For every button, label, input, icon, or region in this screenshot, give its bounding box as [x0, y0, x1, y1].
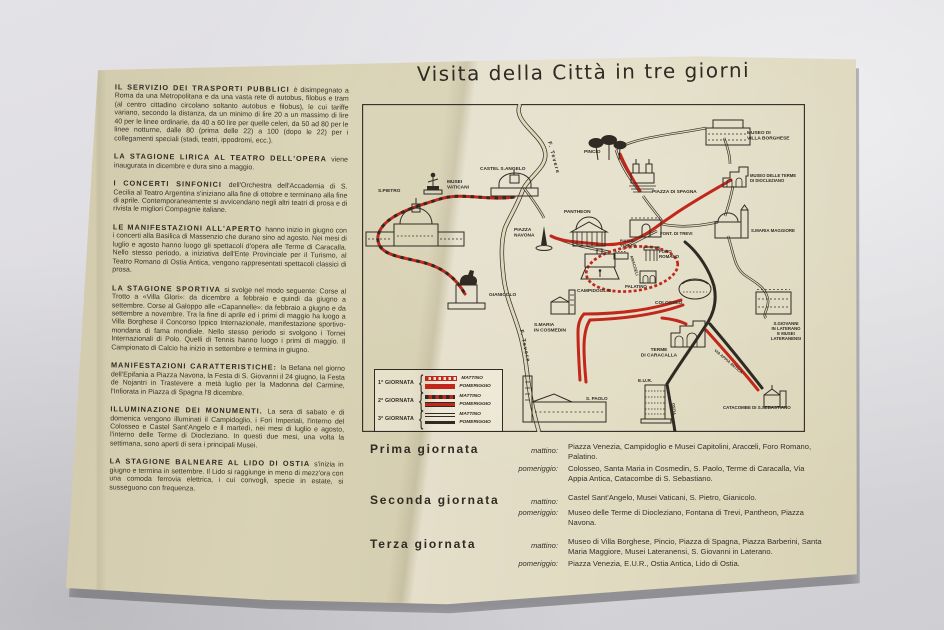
itinerary-day-name: Seconda giornata: [370, 493, 500, 507]
terme-diocleziano-icon: [723, 167, 748, 187]
legend-entry: MATTINO: [425, 412, 490, 417]
map-label: S.PIETRO: [378, 188, 401, 194]
itinerary-time-label: pomeriggio:: [370, 508, 558, 529]
legend-swatch-label: MATTINO: [461, 376, 483, 381]
map-label: F. Tevere: [546, 141, 560, 175]
map-label: CAMPIDOGLIO: [577, 288, 612, 294]
vittoriano-icon: [614, 252, 628, 260]
campidoglio-icon: [581, 249, 619, 279]
map-label: FOROROMANO: [659, 249, 680, 259]
map-label: COLOSSEO: [655, 300, 682, 306]
map-label: CATACOMBE DI S.SEBASTIANO: [723, 405, 791, 410]
santa-maria-maggiore-icon: [715, 205, 748, 238]
map-label: GIANICOLO: [489, 292, 516, 298]
trinita-dei-monti-icon: [629, 159, 656, 192]
itinerary-day: Terza giornatamattino:Museo di Villa Bor…: [370, 537, 822, 569]
map-label: ARACOELI: [629, 255, 640, 276]
map-label: FONT. DI TREVI: [660, 231, 692, 236]
route-legend: 1ª GIORNATA{MATTINOPOMERIGGIO2ª GIORNATA…: [374, 369, 503, 432]
itinerary-afternoon-text: Piazza Venezia, E.U.R., Ostia Antica, Li…: [568, 559, 822, 569]
legend-row: 2ª GIORNATA{MATTINOPOMERIGGIO: [378, 394, 499, 407]
itinerary-day-head: Seconda giornatamattino:: [370, 493, 558, 507]
legend-brace: {: [419, 408, 423, 428]
brochure-paper: IL SERVIZIO DEI TRASPORTI PUBBLICI è dis…: [60, 12, 860, 612]
itinerary-day-head: Terza giornatamattino:: [370, 537, 558, 558]
legend-swatch-d1p: [425, 384, 455, 389]
itinerary-afternoon-text: Colosseo, Santa Maria in Cosmedin, S. Pa…: [568, 464, 822, 485]
legend-entries: MATTINOPOMERIGGIO: [425, 394, 490, 407]
catacombe-church-icon: [764, 385, 786, 407]
legend-day-label: 2ª GIORNATA: [378, 398, 419, 404]
paragraph-heading: MANIFESTAZIONI CARATTERISTICHE:: [111, 361, 281, 372]
map-label: S.MARIA MAGGIORE: [751, 228, 795, 233]
legend-swatch-d2m: [425, 395, 455, 400]
paragraph-heading: LA STAGIONE BALNEARE AL LIDO DI OSTIA: [110, 457, 315, 469]
map-label: E.U.R.: [638, 378, 652, 384]
paragraph-heading: LA STAGIONE SPORTIVA: [112, 283, 224, 294]
paragraph-heading: LA STAGIONE LIRICA AL TEATRO DELL'OPERA: [114, 152, 331, 164]
legend-swatch-d3p: [425, 421, 455, 425]
brochure-paragraph: IL SERVIZIO DEI TRASPORTI PUBBLICI è dis…: [114, 83, 349, 146]
legend-day-label: 3ª GIORNATA: [378, 416, 419, 422]
itinerary-day: Prima giornatamattino:Piazza Venezia, Ca…: [370, 442, 822, 485]
day3-afternoon-route: [667, 242, 762, 432]
eur-palazzo-icon: [641, 385, 671, 423]
map-label: MUSEIVATICANI: [447, 179, 470, 191]
itinerary-time-label: pomeriggio:: [370, 559, 558, 569]
page-title: Visita della Città in tre giorni: [360, 57, 807, 86]
itinerary-day: Seconda giornatamattino:Castel Sant'Ange…: [370, 493, 822, 529]
legend-entry: POMERIGGIO: [425, 420, 490, 425]
map-label: PINCIO: [584, 149, 601, 155]
legend-swatch-d3m: [425, 413, 455, 418]
itinerary-afternoon-text: Museo delle Terme di Diocleziano, Fontan…: [568, 508, 822, 529]
tiber-river: [502, 104, 545, 432]
legend-swatch-label: MATTINO: [459, 412, 481, 417]
legend-entries: MATTINOPOMERIGGIO: [425, 412, 490, 425]
photo-backdrop: IL SERVIZIO DEI TRASPORTI PUBBLICI è dis…: [0, 0, 944, 630]
colosseo-icon: [679, 279, 711, 299]
itinerary-time-label: pomeriggio:: [370, 464, 558, 485]
left-column: IL SERVIZIO DEI TRASPORTI PUBBLICI è dis…: [109, 83, 349, 504]
legend-swatch-label: POMERIGGIO: [459, 420, 490, 425]
brochure-paragraph: ILLUMINAZIONE DEI MONUMENTI. La sera di …: [110, 405, 345, 452]
day2-afternoon-route: [551, 154, 731, 245]
paragraph-heading: I CONCERTI SINFONICI: [113, 178, 228, 189]
map-label: MUSEO DIVILLA BORGHESE: [747, 130, 790, 142]
legend-entry: POMERIGGIO: [425, 384, 490, 389]
paragraph-heading: LE MANIFESTAZIONI ALL'APERTO: [113, 222, 265, 233]
brochure-paragraph: LA STAGIONE LIRICA AL TEATRO DELL'OPERA …: [114, 153, 348, 174]
legend-swatch-label: POMERIGGIO: [459, 402, 490, 407]
map-label: OSTIA: [671, 403, 677, 416]
itinerary-morning-text: Museo di Villa Borghese, Pincio, Piazza …: [568, 537, 822, 558]
legend-swatch-d2p: [425, 402, 455, 407]
map-label: PIAZZANAVONA: [514, 227, 535, 239]
map-label: F. Tevere: [518, 329, 531, 363]
day2-morning-route: [378, 196, 514, 294]
itinerary-day-head: Prima giornatamattino:: [370, 442, 558, 463]
itinerary-time-label: mattino:: [531, 541, 558, 550]
brochure-paragraph: LE MANIFESTAZIONI ALL'APERTO hanno inizi…: [112, 223, 347, 278]
villa-borghese-icon: [706, 120, 750, 145]
brochure-paragraph: I CONCERTI SINFONICI dell'Orchestra dell…: [113, 179, 347, 217]
legend-row: 3ª GIORNATA{MATTINOPOMERIGGIO: [378, 412, 499, 425]
vatican-statue-icon: [424, 173, 442, 194]
map-label: PIAZZA DI SPAGNA: [652, 189, 697, 195]
paragraph-heading: ILLUMINAZIONE DEI MONUMENTI.: [110, 404, 267, 415]
legend-entry: MATTINO: [425, 376, 490, 381]
map-label: TERMEDI CARACALLA: [641, 347, 678, 359]
map-label: S.MARIAIN COSMEDIN: [534, 322, 567, 334]
brochure-paragraph: LA STAGIONE BALNEARE AL LIDO DI OSTIA s'…: [109, 458, 343, 496]
castel-santangelo-icon: [491, 170, 538, 196]
legend-entry: MATTINO: [425, 394, 490, 399]
san-giovanni-laterano-icon: [756, 290, 791, 315]
map-label: MUSEO DELLE TERMEDI DIOCLEZIANO: [750, 173, 796, 183]
itinerary-morning-text: Piazza Venezia, Campidoglio e Musei Capi…: [568, 442, 822, 463]
itinerary-morning-text: Castel Sant'Angelo, Musei Vaticani, S. P…: [568, 493, 822, 507]
map-label: S. PAOLO: [586, 396, 608, 401]
legend-row: 1ª GIORNATA{MATTINOPOMERIGGIO: [378, 376, 499, 389]
itinerary-day-name: Prima giornata: [370, 442, 479, 456]
legend-swatch-d1m: [425, 376, 457, 381]
map-label: PALATINO: [625, 284, 647, 289]
navona-obelisk-icon: [536, 226, 552, 251]
map-label: S.GIOVANNIIN LATERANOE MUSEILATERANENSI: [771, 321, 801, 341]
itinerary-time-label: mattino:: [531, 446, 558, 455]
legend-entry: POMERIGGIO: [425, 402, 490, 407]
paragraph-heading: IL SERVIZIO DEI TRASPORTI PUBBLICI: [115, 82, 294, 93]
legend-swatch-label: MATTINO: [459, 394, 481, 399]
itinerary-day-name: Terza giornata: [370, 537, 476, 551]
map-label: PANTHEON: [564, 209, 591, 215]
brochure-paragraph: LA STAGIONE SPORTIVA si svolge nel modo …: [111, 284, 346, 356]
itinerary-time-label: mattino:: [531, 497, 558, 506]
brochure-paragraph: MANIFESTAZIONI CARATTERISTICHE: la Befan…: [111, 362, 345, 400]
itinerary-list: Prima giornatamattino:Piazza Venezia, Ca…: [370, 442, 822, 577]
day1-afternoon-route: [578, 300, 758, 390]
palatino-ruins-icon: [640, 271, 656, 283]
map-label: CASTEL S.ANGELO: [480, 166, 526, 172]
legend-entries: MATTINOPOMERIGGIO: [425, 376, 490, 389]
gianicolo-statue-icon: [448, 270, 485, 309]
legend-swatch-label: POMERIGGIO: [459, 384, 490, 389]
st-peters-basilica-icon: [366, 198, 464, 246]
legend-day-label: 1ª GIORNATA: [378, 380, 419, 386]
santa-maria-cosmedin-icon: [551, 290, 575, 314]
